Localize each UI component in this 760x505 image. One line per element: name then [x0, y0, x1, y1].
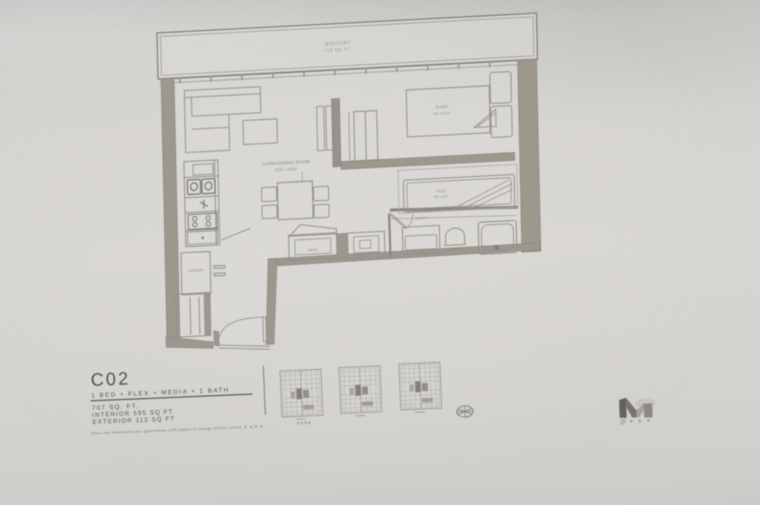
svg-text:4-5.0.8: 4-5.0.8: [297, 421, 311, 426]
svg-text:MEDIA: MEDIA: [308, 248, 319, 253]
svg-text:6'8" x 8'1": 6'8" x 8'1": [434, 194, 450, 199]
svg-text:VANITY: VANITY: [415, 216, 427, 221]
svg-text:LAUNDRY: LAUNDRY: [188, 268, 205, 273]
svg-text:FLEX: FLEX: [437, 189, 447, 194]
svg-text:SLEEP: SLEEP: [435, 104, 448, 110]
svg-text:C02: C02: [90, 368, 130, 390]
